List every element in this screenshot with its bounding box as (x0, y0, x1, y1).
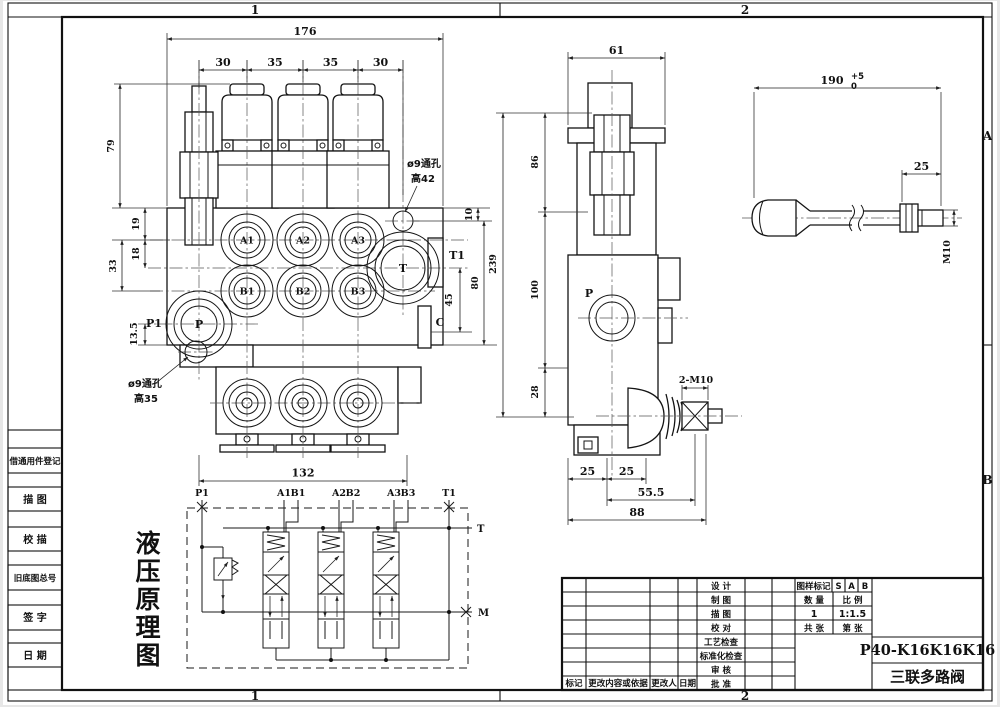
port-a1: A1 (221, 214, 273, 266)
bottom-tabs (220, 434, 385, 452)
callout-hole-bottom-2: 高35 (134, 392, 158, 405)
svg-text:35: 35 (267, 56, 282, 69)
sign-label: 工艺检查 (704, 637, 739, 648)
register-cell-label: 日 期 (23, 649, 46, 662)
sheet-index: 第 张 (843, 623, 863, 634)
zone-right-b: B (982, 473, 992, 487)
svg-text:28: 28 (530, 385, 541, 399)
svg-text:33: 33 (108, 259, 119, 272)
schem-port-t1: T1 (442, 488, 456, 499)
zone-right-a: A (982, 129, 993, 143)
callout-hole-bottom: ø9通孔 (128, 377, 162, 390)
svg-text:30: 30 (215, 56, 231, 69)
register-cell-label: 描 图 (23, 493, 46, 506)
svg-text:A1: A1 (239, 236, 254, 247)
svg-text:B3: B3 (351, 287, 366, 298)
svg-text:2-M10: 2-M10 (679, 375, 714, 386)
sign-label: 描 图 (711, 609, 731, 620)
svg-text:176: 176 (294, 25, 317, 38)
svg-text:35: 35 (323, 56, 338, 69)
svg-text:10: 10 (464, 208, 475, 222)
zone-top-2: 2 (741, 3, 749, 17)
svg-text:13.5: 13.5 (129, 322, 140, 345)
revision-header: 更改人 (651, 678, 677, 689)
revision-header: 日期 (679, 678, 697, 689)
svg-text:45: 45 (444, 293, 455, 306)
schem-port-t: T (477, 524, 485, 535)
mark-label: 图样标记 (796, 581, 831, 592)
svg-text:P: P (585, 287, 593, 300)
sign-label: 校 对 (711, 623, 731, 634)
svg-text:A2: A2 (295, 236, 310, 247)
svg-text:86: 86 (530, 155, 541, 169)
svg-text:压: 压 (135, 557, 160, 586)
part-name: 三联多路阀 (890, 668, 965, 686)
svg-text:100: 100 (530, 280, 541, 300)
svg-text:80: 80 (470, 276, 481, 290)
svg-text:79: 79 (106, 139, 117, 153)
schem-port-b1: B1 (291, 488, 306, 499)
svg-text:+5: +5 (851, 72, 864, 82)
sign-label: 制 图 (711, 595, 731, 606)
schem-port-a2: A2 (331, 488, 346, 499)
svg-text:30: 30 (373, 56, 389, 69)
sign-label: 批 准 (711, 679, 731, 690)
svg-text:T: T (399, 262, 408, 275)
schem-port-a1: A1 (276, 488, 291, 499)
svg-text:原: 原 (135, 585, 160, 614)
schem-port-b2: B2 (346, 488, 361, 499)
svg-text:190: 190 (821, 74, 844, 87)
svg-text:A3: A3 (350, 236, 365, 247)
schem-port-p1: P1 (195, 488, 209, 499)
schem-port-a3: A3 (386, 488, 401, 499)
port-label-t1: T1 (449, 249, 465, 262)
schematic-title: 液 压 原 理 图 (135, 529, 160, 670)
zone-bottom-1: 1 (251, 689, 259, 703)
svg-text:0: 0 (851, 82, 857, 92)
svg-text:图: 图 (135, 641, 160, 670)
svg-text:55.5: 55.5 (638, 486, 665, 499)
qty-value: 1 (811, 609, 818, 620)
mark-cell: A (848, 582, 855, 592)
svg-text:18: 18 (131, 247, 142, 261)
svg-text:19: 19 (131, 217, 142, 231)
lever-nut (900, 204, 918, 232)
sheets-total: 共 张 (804, 623, 824, 634)
svg-text:M10: M10 (942, 240, 953, 264)
callout-hole-top: ø9通孔 (407, 157, 441, 170)
register-cell-label: 签 字 (22, 611, 46, 624)
mark-cell: S (835, 582, 841, 592)
sign-label: 审 核 (711, 665, 731, 676)
scale-value: 1:1.5 (839, 609, 866, 620)
svg-text:132: 132 (292, 467, 315, 480)
svg-text:25: 25 (914, 160, 929, 173)
mark-cell: B (862, 582, 868, 592)
schem-port-m: M (478, 608, 489, 619)
port-b3: B3 (332, 265, 384, 317)
sign-label: 设 计 (711, 581, 731, 592)
zone-top-1: 1 (251, 3, 259, 17)
svg-text:B1: B1 (240, 287, 255, 298)
register-cell-label: 校 描 (23, 533, 46, 546)
svg-text:61: 61 (609, 44, 624, 57)
port-a2: A2 (277, 214, 329, 266)
svg-text:液: 液 (135, 529, 160, 558)
lever-grip (752, 200, 796, 236)
sign-label: 标准化检查 (699, 651, 743, 662)
qty-label: 数 量 (804, 595, 824, 606)
port-label-p1: P1 (146, 317, 162, 330)
c-boss (418, 306, 431, 348)
register-cell-label: 借通用件登记 (8, 456, 61, 467)
svg-text:B2: B2 (296, 287, 311, 298)
revision-header: 更改内容或依据 (588, 678, 648, 689)
svg-text:88: 88 (629, 506, 645, 519)
callout-hole-top-2: 高42 (411, 172, 435, 185)
schem-port-b3: B3 (401, 488, 416, 499)
svg-text:25: 25 (619, 465, 634, 478)
port-label-c: C (436, 316, 445, 329)
revision-header: 标记 (564, 678, 583, 689)
part-number: P40-K16K16K16 (860, 642, 995, 659)
port-b2: B2 (277, 265, 329, 317)
svg-text:理: 理 (135, 613, 160, 642)
scale-label: 比 例 (843, 595, 863, 606)
svg-text:P: P (195, 318, 203, 331)
drawing-sheet: 1 2 1 2 A B 借通用件登记 描 图 校 描 旧底图总号 签 字 日 期 (0, 0, 1000, 707)
svg-text:239: 239 (488, 254, 499, 274)
port-a3: A3 (332, 214, 384, 266)
svg-text:25: 25 (580, 465, 595, 478)
register-cell-label: 旧底图总号 (14, 573, 57, 584)
drawing-canvas: 1 2 1 2 A B 借通用件登记 描 图 校 描 旧底图总号 签 字 日 期 (0, 0, 1000, 707)
